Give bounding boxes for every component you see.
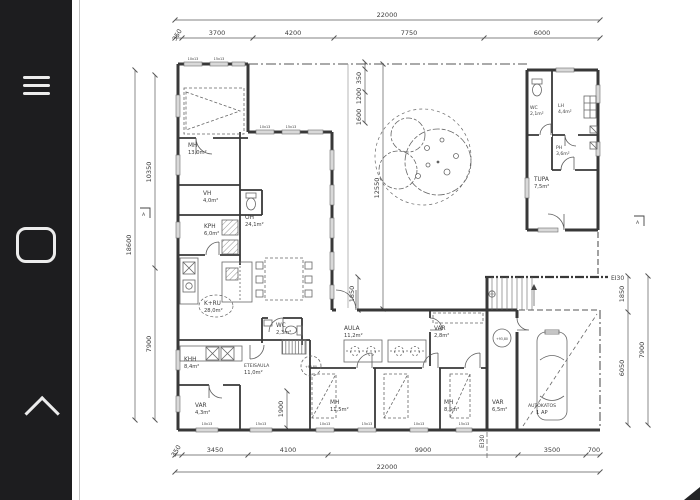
room-label-kph: KPH — [204, 224, 216, 230]
svg-text:13,0m²: 13,0m² — [188, 150, 207, 156]
dim-inner-350: 350 — [355, 72, 363, 84]
svg-text:8,5m²: 8,5m² — [444, 407, 459, 413]
dim-left-10350: 10350 — [145, 162, 153, 183]
svg-text:2,3m²: 2,3m² — [276, 330, 291, 336]
level-text-2: +93,80 — [496, 337, 508, 341]
dim-inner-1900: 1900 — [277, 401, 285, 418]
tree — [375, 109, 471, 205]
svg-text:15x13: 15x13 — [459, 422, 470, 426]
app-window: 22000 350 3700 4200 7750 6000 22000 350 … — [0, 0, 700, 500]
room-label-aula: AULA — [344, 326, 360, 332]
room-label-ph: PH — [556, 145, 562, 151]
svg-text:1 AP: 1 AP — [536, 410, 548, 416]
svg-text:10x13: 10x13 — [320, 422, 331, 426]
room-label-mh2: MH — [330, 400, 339, 406]
room-label-khh: KHH — [184, 357, 197, 363]
dim-right-1850: 1850 — [618, 286, 626, 303]
dim-bot-4100: 4100 — [280, 446, 297, 454]
dim-inner-1850: 1850 — [348, 286, 356, 303]
dim-inner-12550: 12550 — [373, 178, 381, 199]
svg-text:4,4m²: 4,4m² — [558, 109, 572, 115]
room-label-var3: VAR — [492, 400, 504, 406]
svg-text:11,0m²: 11,0m² — [244, 370, 263, 376]
dim-top-3700: 3700 — [209, 29, 226, 37]
svg-text:10x13: 10x13 — [202, 422, 213, 426]
toolbar-sidebar — [0, 0, 72, 500]
room-label-oh: OH — [245, 215, 254, 221]
dim-bot-3500: 3500 — [544, 446, 561, 454]
dim-left-7900: 7900 — [145, 336, 153, 353]
svg-text:11,2m²: 11,2m² — [344, 333, 363, 339]
car — [523, 314, 597, 426]
dim-right-6050: 6050 — [618, 360, 626, 377]
room-label-lh: LH — [558, 103, 564, 109]
room-label-wc1: WC — [276, 323, 286, 329]
dim-bot-9900: 9900 — [415, 446, 432, 454]
room-label-mh3: MH — [444, 400, 453, 406]
dim-top-6000: 6000 — [534, 29, 551, 37]
dim-bot-700: 700 — [588, 446, 600, 454]
svg-text:15x13: 15x13 — [362, 422, 373, 426]
room-label-var1: VAR — [195, 403, 207, 409]
svg-text:10x13: 10x13 — [414, 422, 425, 426]
walls — [178, 64, 608, 430]
dim-left-overall: 18600 — [125, 235, 133, 256]
svg-text:28,0m²: 28,0m² — [204, 308, 223, 314]
dim-right-overall: 7900 — [638, 342, 646, 359]
dim-bot-3450: 3450 — [207, 446, 224, 454]
room-label-var2: VAR — [434, 326, 446, 332]
floorplan-canvas[interactable]: 22000 350 3700 4200 7750 6000 22000 350 … — [0, 0, 700, 500]
annotation-markers: A A EI30 — [140, 208, 644, 282]
room-label-autokatos: AUTOKATOS — [528, 403, 556, 409]
section-marker-a-left: A — [142, 212, 146, 218]
svg-text:11,5m²: 11,5m² — [330, 407, 349, 413]
room-label-mh1: MH — [188, 143, 197, 149]
dim-top-7750: 7750 — [401, 29, 418, 37]
stairs — [489, 277, 534, 310]
svg-text:7,5m²: 7,5m² — [534, 184, 549, 190]
dim-bot-350: 350 — [170, 444, 183, 459]
svg-text:24,1m²: 24,1m² — [245, 222, 264, 228]
svg-text:3,6m²: 3,6m² — [556, 151, 570, 157]
svg-text:2,8m²: 2,8m² — [434, 333, 449, 339]
svg-text:6,5m²: 6,5m² — [492, 407, 507, 413]
dim-top-4200: 4200 — [285, 29, 302, 37]
svg-text:4,3m²: 4,3m² — [195, 410, 210, 416]
squircle-glyph — [16, 227, 56, 263]
svg-text:10x13: 10x13 — [260, 125, 271, 129]
menu-bars — [23, 76, 50, 95]
door-gaps — [191, 135, 578, 385]
page-corner-mark — [684, 487, 700, 500]
chevron-up-glyph — [24, 395, 59, 430]
fire-rating-bottom: EI30 — [479, 435, 486, 448]
room-label-wc2: WC — [530, 105, 538, 111]
dim-bottom-overall: 22000 — [377, 463, 398, 471]
doors — [196, 124, 576, 398]
room-label-kru: K+RU — [204, 301, 221, 307]
menu-icon[interactable] — [0, 57, 72, 113]
room-label-vh: VH — [203, 191, 211, 197]
svg-text:15x13: 15x13 — [214, 57, 225, 61]
room-label-tupa: TUPA — [533, 177, 549, 183]
room-label-eteisaula: ETEISAULA — [244, 363, 270, 369]
shape-tool-icon[interactable] — [0, 217, 72, 273]
svg-text:2,1m²: 2,1m² — [530, 111, 544, 117]
svg-text:15x13: 15x13 — [256, 422, 267, 426]
collapse-up-icon[interactable] — [0, 385, 72, 441]
svg-text:8,4m²: 8,4m² — [184, 364, 199, 370]
svg-text:6,0m²: 6,0m² — [204, 231, 219, 237]
room-labels: MH 13,0m² VH 4,0m² KPH 6,0m² OH 24,1m² K… — [184, 103, 572, 416]
svg-text:15x13: 15x13 — [286, 125, 297, 129]
dim-inner-1600: 1600 — [355, 109, 363, 126]
section-marker-a-right: A — [636, 220, 640, 226]
furniture — [180, 79, 597, 426]
dim-top-overall: 22000 — [377, 11, 398, 19]
level-text-1: +93,80 — [305, 365, 317, 369]
svg-text:4,0m²: 4,0m² — [203, 198, 218, 204]
svg-text:10x13: 10x13 — [188, 57, 199, 61]
dim-inner-1200: 1200 — [355, 88, 363, 105]
dimension-labels: 22000 350 3700 4200 7750 6000 22000 350 … — [125, 11, 646, 471]
sidebar-divider — [72, 0, 80, 500]
dim-top-350: 350 — [171, 28, 184, 43]
fire-rating-right: EI30 — [611, 275, 624, 282]
